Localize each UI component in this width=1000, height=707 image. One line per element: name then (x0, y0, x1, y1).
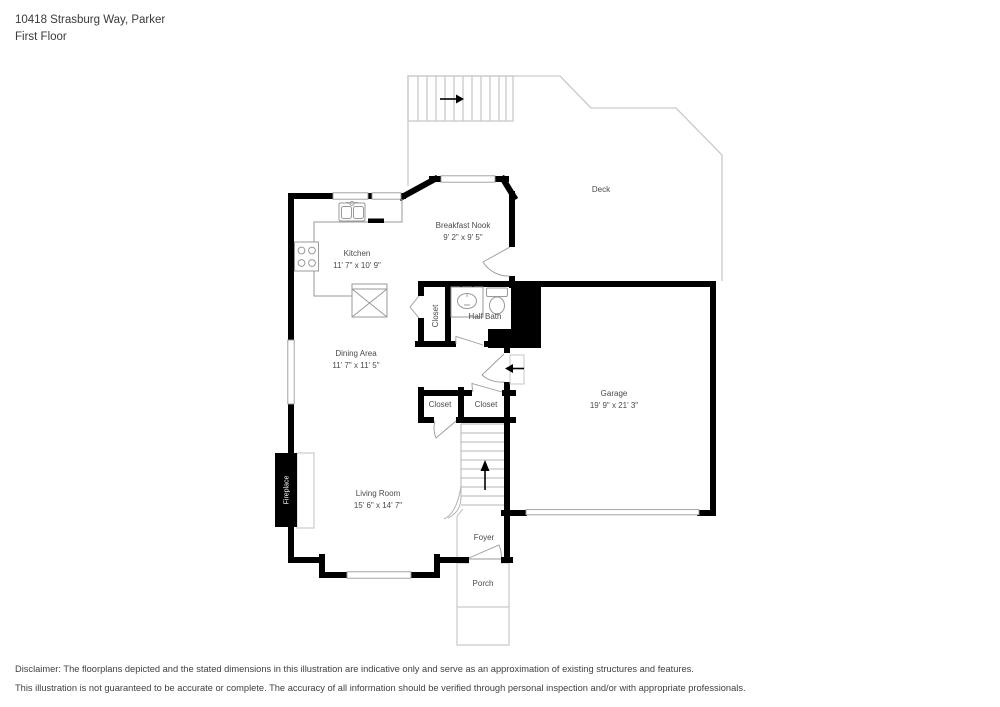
floorplan-page: 10418 Strasburg Way, Parker First Floor (0, 0, 1000, 707)
dining-window (288, 340, 294, 404)
disclaimer-line-2: This illustration is not guaranteed to b… (15, 679, 746, 698)
walls (291, 179, 713, 575)
hearth (297, 453, 314, 528)
dishwasher-icon (368, 219, 384, 224)
kitchen-label: Kitchen (344, 249, 371, 258)
hall-closet-label: Closet (431, 304, 440, 327)
kitchen-window-2 (372, 193, 401, 199)
deck-label: Deck (592, 185, 611, 194)
living-room-dims: 15' 6" x 14' 7" (354, 501, 402, 510)
porch-outline (457, 509, 509, 645)
garage-door (526, 510, 699, 515)
stove-icon (295, 242, 319, 271)
livingroom-bay-window (347, 572, 411, 578)
living-room-label: Living Room (356, 489, 401, 498)
kitchen-fixtures (295, 199, 403, 317)
fireplace: Fireplace (275, 453, 314, 528)
foyer-label: Foyer (474, 533, 495, 542)
dining-area-label: Dining Area (335, 349, 377, 358)
garage-entry-door-swing (482, 354, 504, 382)
main-stairs-arrow-icon (481, 460, 490, 490)
disclaimer-line-1: Disclaimer: The floorplans depicted and … (15, 660, 746, 679)
kitchen-sink-icon (339, 202, 365, 222)
nook-bay-window (441, 176, 495, 182)
breakfast-nook-dims: 9' 2" x 9' 5" (443, 233, 483, 242)
deck-door-swing (483, 247, 510, 276)
floorplan-drawing: Fireplace Deck Breakfast Nook 9' 2" x 9'… (0, 0, 1000, 707)
dining-area-dims: 11' 7" x 11' 5" (332, 361, 379, 370)
disclaimer-block: Disclaimer: The floorplans depicted and … (15, 660, 746, 698)
porch-label: Porch (473, 579, 494, 588)
garage-dims: 19' 9" x 21' 3" (590, 401, 638, 410)
closet-right-label: Closet (475, 400, 498, 409)
closet-left-label: Closet (429, 400, 452, 409)
kitchen-dims: 11' 7" x 10' 9" (333, 261, 381, 270)
fireplace-label: Fireplace (284, 476, 291, 505)
deck-stairs-arrow-icon (440, 95, 464, 104)
breakfast-nook-label: Breakfast Nook (436, 221, 492, 230)
half-bath-label: Half Bath (469, 312, 502, 321)
garage-label: Garage (601, 389, 628, 398)
kitchen-window-1 (333, 193, 368, 199)
main-stairs (444, 424, 505, 519)
windows (288, 176, 699, 578)
refrigerator-icon (352, 284, 387, 317)
toilet-icon (487, 288, 508, 314)
